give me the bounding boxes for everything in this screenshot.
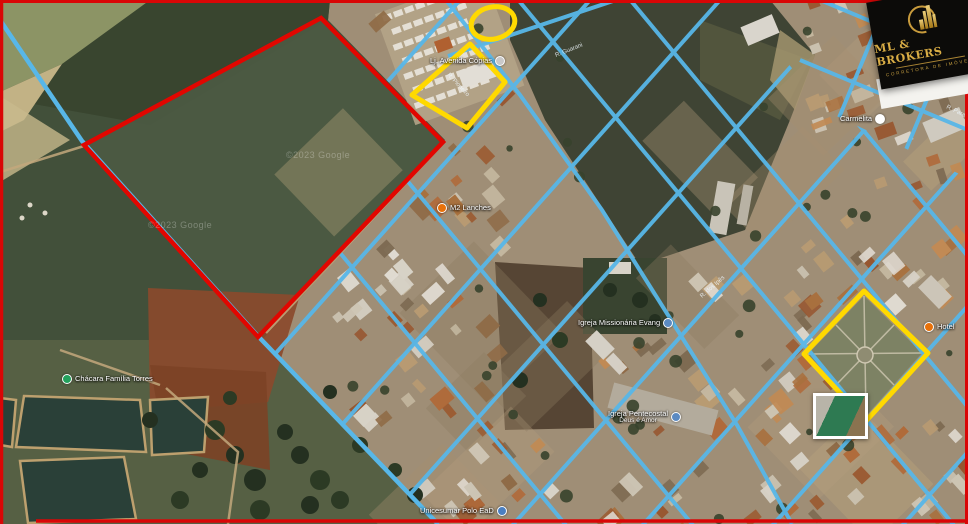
google-watermark: ©2023 Google — [286, 150, 350, 160]
church-icon — [671, 412, 681, 422]
map-canvas[interactable]: R. PioneiroR. GuaraniR. ParanáR. dos Ipê… — [0, 0, 968, 524]
street-photo-thumbnail[interactable] — [813, 393, 868, 439]
place-icon — [875, 114, 885, 124]
buildings-arc-icon — [905, 2, 939, 35]
church-icon — [663, 318, 673, 328]
park-icon — [62, 374, 72, 384]
brand-logo: ML & BROKERS CORRETORA DE IMÓVEIS — [866, 0, 968, 90]
lodging-icon — [924, 322, 934, 332]
poi-label-igreja-missao[interactable]: Igreja Missionária Evang — [578, 318, 673, 328]
poi-label-m2-lanches[interactable]: M2 Lanches — [437, 203, 491, 213]
restaurant-icon — [437, 203, 447, 213]
school-icon — [497, 506, 507, 516]
google-watermark: ©2023 Google — [148, 220, 212, 230]
map-viewport[interactable]: R. PioneiroR. GuaraniR. ParanáR. dos Ipê… — [0, 0, 968, 524]
poi-label-hotel[interactable]: Hotel — [924, 322, 955, 332]
poi-label-carmelita[interactable]: Carmelita — [840, 114, 885, 124]
poi-label-copy-shop[interactable]: Lj. Avenida Cópias — [430, 56, 505, 66]
poi-label-polo-ead[interactable]: Unicesumar Polo EaD — [420, 506, 507, 516]
store-icon — [495, 56, 505, 66]
poi-label-chacara[interactable]: Chácara Família Torres — [62, 374, 153, 384]
poi-label-igreja-pentecostal[interactable]: Igreja Pentecostal Deus é Amor — [608, 410, 681, 425]
